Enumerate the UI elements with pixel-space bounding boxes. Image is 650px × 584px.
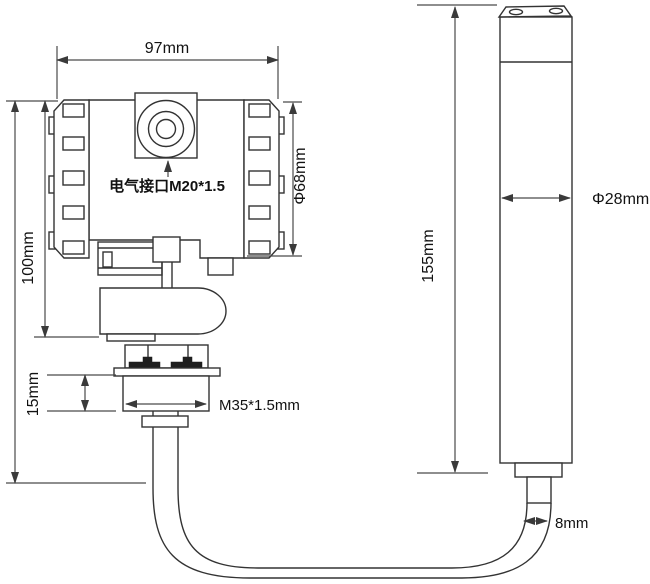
dimension-label-probe-diameter: Φ28mm [592, 191, 649, 208]
pipe-collar [142, 416, 188, 427]
probe-cap-hole [550, 8, 563, 13]
dimension-cable-diameter: 8mm [524, 515, 588, 532]
down-pipe [142, 411, 188, 488]
dimension-label-cable-diameter: 8mm [555, 515, 588, 532]
transmitter-view [49, 93, 284, 488]
dimension-top-width: 97mm [57, 40, 278, 99]
probe-cap-hole [510, 9, 523, 14]
electrical-gland [135, 93, 197, 158]
technical-drawing-page: 97mm 100mm 15mm Φ68mm [0, 0, 650, 584]
washer-plate [114, 368, 220, 376]
dimension-label-housing-height: 100mm [20, 231, 37, 284]
probe-bottom-flange [515, 463, 562, 477]
dimension-label-flange-height: 15mm [25, 372, 42, 416]
right-ribbed-cap [244, 100, 284, 258]
process-head [100, 288, 226, 341]
dimension-label-probe-length: 155mm [420, 229, 437, 282]
label-electrical-port: 电气接口M20*1.5 [109, 177, 225, 195]
dimension-label-top-width: 97mm [145, 40, 189, 57]
dimension-probe-length: 155mm [417, 5, 497, 473]
probe-cable-neck [527, 477, 551, 503]
dimension-flange-height: 15mm [25, 372, 116, 416]
lock-nut [123, 376, 209, 411]
probe-body [500, 17, 572, 463]
seal-section [125, 345, 208, 368]
probe-view [499, 6, 572, 503]
left-ribbed-cap [49, 100, 89, 258]
technical-drawing: 97mm 100mm 15mm Φ68mm [0, 0, 650, 584]
dimension-label-process-thread: M35*1.5mm [219, 397, 300, 414]
dimension-label-housing-diameter: Φ68mm [292, 147, 309, 204]
connection-cable [153, 488, 551, 578]
